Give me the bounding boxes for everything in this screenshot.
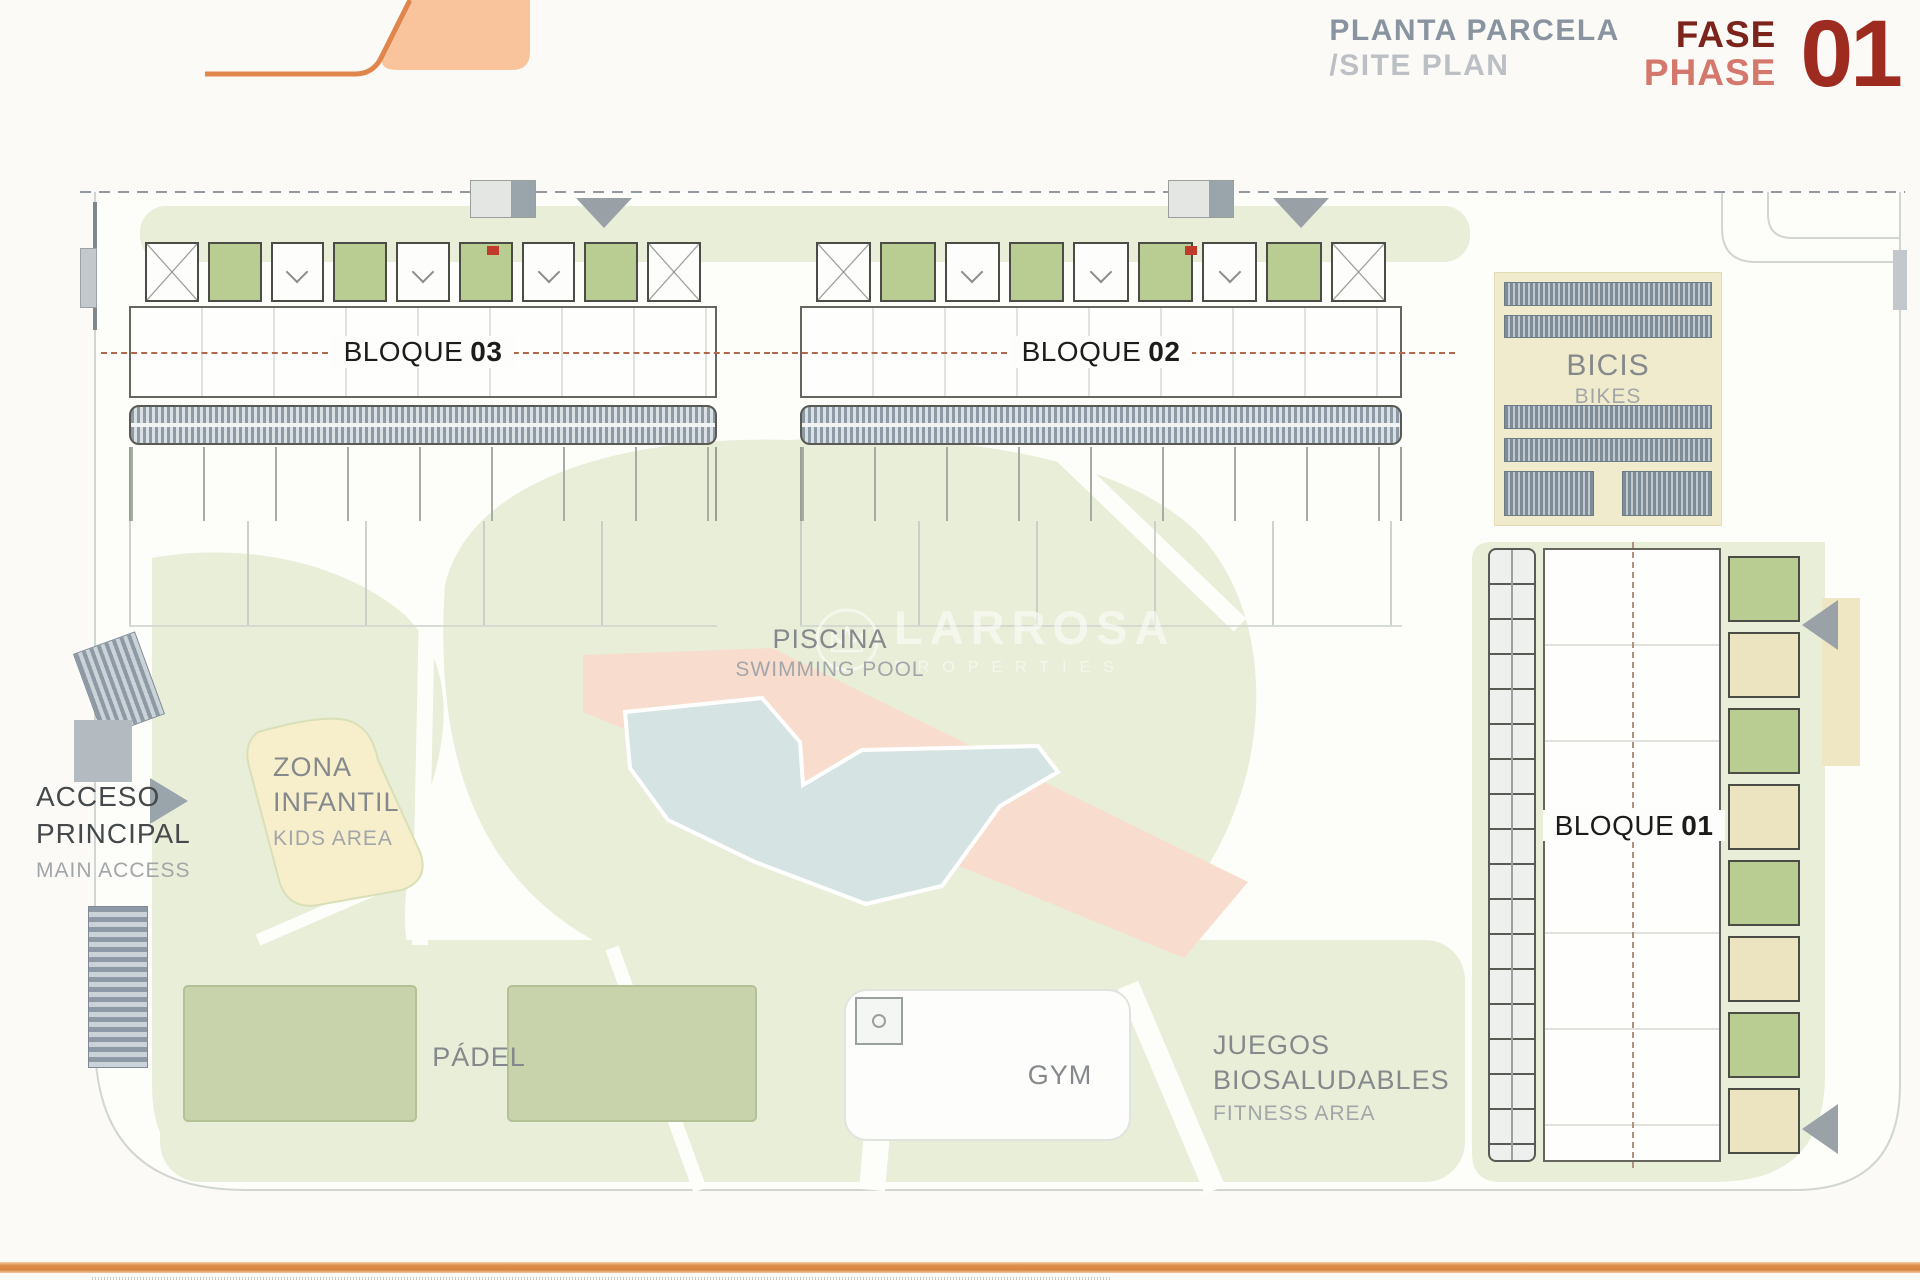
bloque-01-label: BLOQUE01 <box>1448 810 1820 842</box>
parking-strip <box>129 405 717 445</box>
stair-core <box>1168 180 1234 218</box>
terrace-row <box>129 242 717 302</box>
unit-cell <box>1073 242 1128 302</box>
terrace-cell <box>208 242 262 302</box>
bike-rack <box>1504 315 1712 339</box>
unit-stalls <box>129 447 717 521</box>
balcony-green-cell <box>1728 708 1800 774</box>
bloque-02-label: BLOQUE02 <box>1010 336 1193 368</box>
fitness-area-label: JUEGOS BIOSALUDABLES FITNESS AREA <box>1213 1028 1450 1126</box>
phase-labels: FASE PHASE <box>1644 16 1776 91</box>
unit-cell <box>1202 242 1257 302</box>
terrace-row <box>800 242 1402 302</box>
plan-title-es: PLANTA PARCELA <box>1329 14 1619 49</box>
building-slab: BLOQUE03 <box>129 306 717 398</box>
stair-cell <box>647 242 701 302</box>
site-plan-page: BLOQUE03 BLOQUE02 BLOQUE01 <box>0 0 1920 1280</box>
plan-title-en: /SITE PLAN <box>1329 49 1619 84</box>
kids-area-label: ZONA INFANTIL KIDS AREA <box>273 750 400 851</box>
balcony-column <box>1728 548 1800 1162</box>
stair-cell <box>1331 242 1386 302</box>
balcony-cream-cell <box>1728 632 1800 698</box>
unit-cell <box>945 242 1000 302</box>
plan-title: PLANTA PARCELA /SITE PLAN <box>1329 14 1619 83</box>
terrace-cell <box>459 242 513 302</box>
phase-label-es: FASE <box>1644 16 1776 54</box>
padel-label: PÁDEL <box>409 1040 549 1075</box>
terrace-cell <box>1009 242 1064 302</box>
kerb-tab <box>80 248 97 308</box>
balcony-green-cell <box>1728 860 1800 926</box>
stair-core <box>470 180 536 218</box>
balcony-cream-cell <box>1728 1088 1800 1154</box>
bikes-label: BICIS BIKES <box>1524 348 1692 409</box>
garden-plots <box>129 521 717 627</box>
hydrant-marker <box>487 246 499 255</box>
gym-equipment-icon <box>856 998 902 1044</box>
bloque-03-label: BLOQUE03 <box>332 336 515 368</box>
bike-rack <box>1504 282 1712 306</box>
terrace-cell <box>333 242 387 302</box>
footer-accent-band <box>0 1262 1920 1273</box>
building-slab <box>1543 548 1721 1162</box>
padel-court-1 <box>184 986 416 1121</box>
building-bloque-01: BLOQUE01 <box>1488 548 1800 1162</box>
parking-column <box>1488 548 1536 1162</box>
logo-stroke <box>205 2 409 74</box>
entry-arrow-icon <box>1802 1104 1838 1154</box>
hydrant-marker <box>1185 246 1197 255</box>
bike-rack <box>1504 438 1712 462</box>
access-pad <box>74 720 132 782</box>
balcony-cream-cell <box>1728 936 1800 1002</box>
bike-rack-pair <box>1504 471 1712 516</box>
balcony-green-cell <box>1728 556 1800 622</box>
terrace-cell <box>1266 242 1321 302</box>
phase-number: 01 <box>1800 16 1900 92</box>
terrace-cell <box>880 242 935 302</box>
unit-cell <box>271 242 325 302</box>
main-access-label: ACCESO PRINCIPAL MAIN ACCESS <box>36 778 191 883</box>
brand-logo <box>205 0 535 92</box>
parking-strip <box>800 405 1402 445</box>
unit-stalls <box>800 447 1402 521</box>
phase-label-en: PHASE <box>1644 54 1776 92</box>
street-parking <box>88 906 148 1068</box>
bike-rack <box>1622 471 1712 516</box>
bike-rack <box>1504 471 1594 516</box>
stair-cell <box>816 242 871 302</box>
pool-label: PISCINA SWIMMING POOL <box>690 622 970 682</box>
building-bloque-02: BLOQUE02 <box>800 242 1402 627</box>
building-slab: BLOQUE02 <box>800 306 1402 398</box>
page-header: PLANTA PARCELA /SITE PLAN FASE PHASE 01 <box>1329 14 1900 92</box>
gym-label: GYM <box>1000 1058 1120 1093</box>
entry-arrow-icon <box>1802 600 1838 650</box>
kerb-tab <box>1893 250 1907 310</box>
balcony-green-cell <box>1728 1012 1800 1078</box>
terrace-cell <box>584 242 638 302</box>
building-bloque-03: BLOQUE03 <box>129 242 717 627</box>
unit-cell <box>396 242 450 302</box>
stair-cell <box>145 242 199 302</box>
unit-cell <box>522 242 576 302</box>
